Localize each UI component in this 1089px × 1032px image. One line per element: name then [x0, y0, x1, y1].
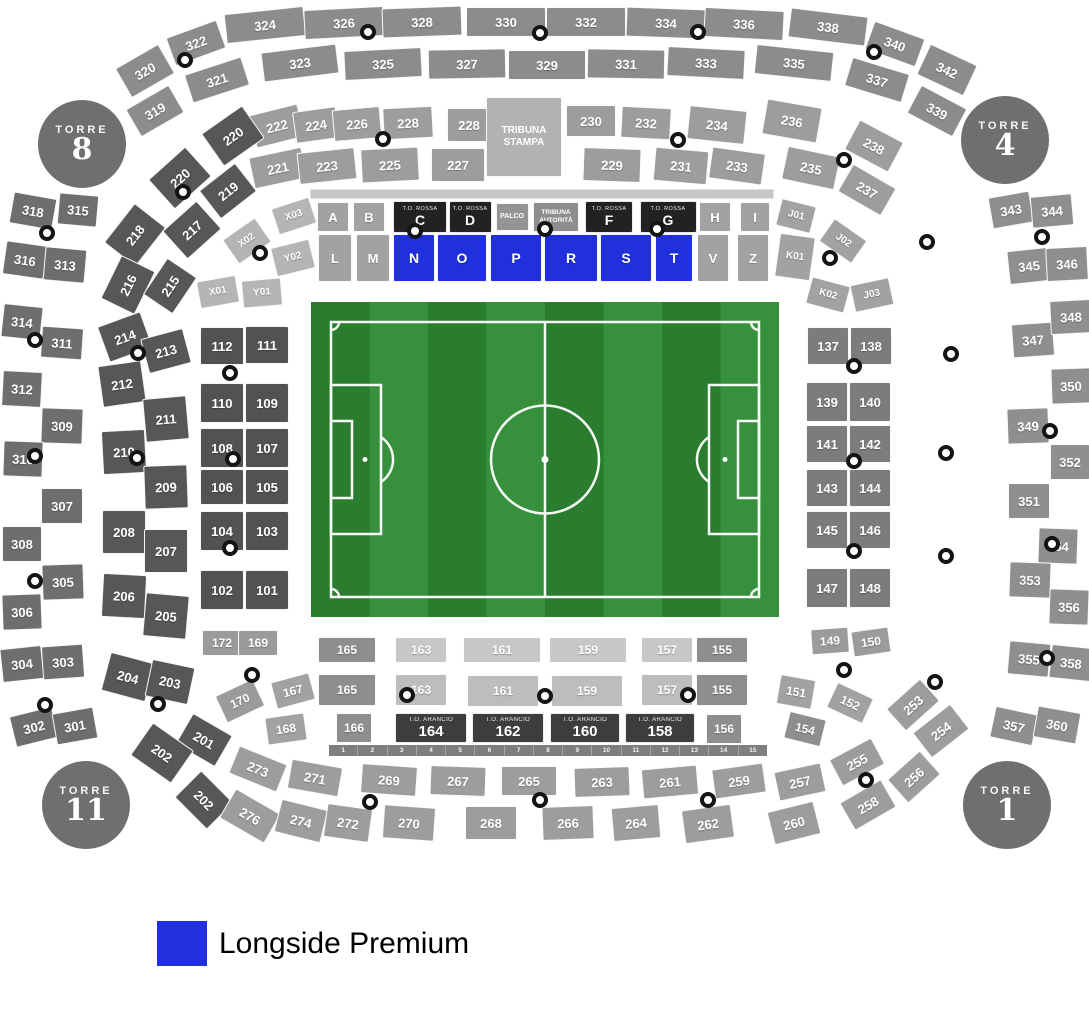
section-343: 343	[988, 191, 1035, 230]
section-211: 211	[142, 395, 190, 443]
section-323: 323	[260, 43, 339, 82]
section-269: 269	[360, 763, 418, 797]
section-332: 332	[546, 7, 626, 37]
section-137: 137	[807, 327, 849, 365]
section-160: T.O. ARANCIO160	[550, 713, 620, 743]
tower-number: 11	[65, 797, 107, 826]
section-348: 348	[1049, 299, 1089, 335]
legend-swatch	[157, 921, 207, 966]
entrance-dot	[222, 365, 238, 381]
entrance-dot	[943, 346, 959, 362]
section-D: T.O. ROSSAD	[449, 201, 492, 233]
pitch	[311, 302, 779, 617]
section-206: 206	[101, 573, 147, 619]
section-H: H	[699, 202, 731, 232]
section-257: 257	[773, 762, 826, 801]
entrance-dot	[532, 25, 548, 41]
row-number: 2	[358, 745, 387, 756]
entrance-dot	[919, 234, 935, 250]
section-148: 148	[849, 568, 891, 608]
section-170: 170	[215, 679, 266, 724]
tower-label: TORRE	[978, 120, 1031, 132]
tower-8: TORRE 8	[38, 100, 126, 188]
section-X03: X03	[271, 197, 318, 236]
section-159: 159	[549, 637, 627, 663]
section-236: 236	[761, 98, 822, 143]
section-329: 329	[508, 50, 586, 80]
section-301: 301	[52, 707, 99, 746]
section-168: 168	[264, 712, 308, 745]
entrance-dot	[670, 132, 686, 148]
legend-label: Longside Premium	[219, 927, 469, 961]
section-161: 161	[463, 637, 541, 663]
section-327: 327	[428, 48, 507, 79]
entrance-dot	[362, 794, 378, 810]
entrance-dot	[222, 540, 238, 556]
tower-1: TORRE 1	[963, 761, 1051, 849]
section-Y02: Y02	[270, 239, 316, 278]
section-271: 271	[287, 759, 343, 798]
row-number: 14	[709, 745, 738, 756]
section-232: 232	[620, 106, 672, 141]
section-336: 336	[703, 7, 784, 41]
section-358: 358	[1048, 644, 1089, 682]
section-150: 150	[850, 626, 891, 657]
section-105: 105	[245, 469, 289, 505]
section-X01: X01	[196, 275, 240, 310]
section-264: 264	[611, 804, 662, 842]
section-263: 263	[573, 766, 630, 798]
tower-label: TORRE	[55, 124, 108, 136]
tower-11: TORRE 11	[42, 761, 130, 849]
section-167: 167	[270, 672, 316, 709]
section-338: 338	[787, 7, 868, 46]
section-215: 215	[143, 258, 197, 315]
section-268: 268	[465, 806, 517, 840]
section-229: 229	[582, 147, 641, 183]
stadium-seat-map: 3243263283303323343363383223403203213233…	[0, 0, 1089, 1032]
section-palco: PALCO	[496, 203, 529, 231]
entrance-dot	[836, 152, 852, 168]
section-306: 306	[1, 593, 42, 630]
tower-label: TORRE	[980, 785, 1033, 797]
section-324: 324	[224, 6, 307, 44]
entrance-dot	[649, 221, 665, 237]
entrance-dot	[938, 548, 954, 564]
section-V: V	[697, 234, 729, 282]
section-165: 165	[318, 674, 376, 706]
entrance-dot	[700, 792, 716, 808]
section-353: 353	[1008, 561, 1051, 598]
section-149: 149	[810, 627, 850, 656]
section-166: 166	[336, 713, 372, 743]
entrance-dot	[537, 688, 553, 704]
entrance-dot	[244, 667, 260, 683]
row-number: 7	[505, 745, 534, 756]
section-233: 233	[708, 146, 766, 185]
section-110: 110	[200, 383, 244, 423]
section-265: 265	[501, 766, 557, 796]
section-144: 144	[849, 469, 891, 507]
section-321: 321	[184, 56, 250, 103]
section-261: 261	[641, 765, 699, 800]
entrance-dot	[399, 687, 415, 703]
entrance-dot	[537, 221, 553, 237]
section-227: 227	[431, 148, 485, 182]
section-208: 208	[102, 510, 146, 554]
section-102: 102	[200, 570, 244, 610]
entrance-dot	[846, 358, 862, 374]
section-A: A	[317, 202, 349, 232]
entrance-dot	[680, 687, 696, 703]
entrance-dot	[532, 792, 548, 808]
section-225: 225	[360, 147, 420, 184]
section-M: M	[356, 234, 390, 282]
section-Z: Z	[737, 234, 769, 282]
entrance-dot	[360, 24, 376, 40]
penalty-spot-left	[363, 457, 368, 462]
section-Y01: Y01	[241, 277, 283, 308]
section-R[interactable]: R	[544, 234, 598, 282]
section-304: 304	[0, 645, 45, 683]
section-155: 155	[696, 637, 748, 663]
entrance-dot	[37, 697, 53, 713]
entrance-dot	[27, 448, 43, 464]
entrance-dot	[1039, 650, 1055, 666]
section-309: 309	[40, 407, 83, 444]
section-302: 302	[9, 706, 59, 748]
entrance-dot	[407, 223, 423, 239]
tower-number: 4	[995, 132, 1016, 161]
section-231: 231	[653, 147, 710, 186]
section-151: 151	[776, 674, 817, 710]
section-155: 155	[696, 674, 748, 706]
section-259: 259	[711, 763, 767, 800]
section-106: 106	[200, 469, 244, 505]
entrance-dot	[252, 245, 268, 261]
row-number: 8	[534, 745, 563, 756]
section-159: 159	[551, 675, 623, 707]
section-351: 351	[1008, 483, 1050, 519]
entrance-dot	[375, 131, 391, 147]
penalty-spot-right	[723, 457, 728, 462]
section-322: 322	[165, 20, 226, 67]
section-140: 140	[849, 382, 891, 422]
row-number: 12	[651, 745, 680, 756]
entrance-dot	[177, 52, 193, 68]
section-164: T.O. ARANCIO164	[395, 713, 467, 743]
section-316: 316	[2, 240, 48, 280]
entrance-dot	[866, 44, 882, 60]
section-331: 331	[587, 48, 666, 79]
section-262: 262	[681, 804, 735, 845]
legend: Longside Premium	[157, 921, 469, 966]
row-number: 9	[563, 745, 592, 756]
section-260: 260	[767, 801, 822, 846]
row-number: 6	[475, 745, 504, 756]
section-147: 147	[806, 568, 848, 608]
section-303: 303	[41, 644, 85, 681]
section-K01: K01	[774, 233, 816, 282]
row-number-strip: 123456789101112131415	[328, 744, 768, 757]
tower-number: 1	[997, 797, 1018, 826]
section-350: 350	[1050, 367, 1089, 404]
section-230: 230	[566, 105, 616, 137]
row-number: 13	[680, 745, 709, 756]
center-spot	[542, 456, 549, 463]
section-267: 267	[429, 765, 486, 797]
entrance-dot	[938, 445, 954, 461]
section-266: 266	[541, 805, 594, 841]
section-tribuna-stampa: TRIBUNASTAMPA	[486, 97, 562, 177]
section-N[interactable]: N	[393, 234, 435, 282]
entrance-dot	[846, 543, 862, 559]
entrance-dot	[690, 24, 706, 40]
entrance-dot	[927, 674, 943, 690]
section-347: 347	[1011, 322, 1055, 359]
entrance-dot	[150, 696, 166, 712]
entrance-dot	[836, 662, 852, 678]
section-J03: J03	[850, 277, 895, 313]
section-T[interactable]: T	[655, 234, 693, 282]
section-161: 161	[467, 675, 539, 707]
section-234: 234	[686, 105, 747, 145]
section-273: 273	[228, 745, 287, 792]
section-337: 337	[844, 57, 910, 103]
section-L: L	[318, 234, 352, 282]
tower-4: TORRE 4	[961, 96, 1049, 184]
section-307: 307	[41, 488, 83, 524]
section-335: 335	[754, 44, 835, 82]
section-111: 111	[245, 326, 289, 364]
section-I: I	[740, 202, 770, 232]
section-158: T.O. ARANCIO158	[625, 713, 695, 743]
section-305: 305	[41, 563, 84, 600]
section-F: T.O. ROSSAF	[585, 201, 633, 233]
entrance-dot	[846, 453, 862, 469]
section-205: 205	[142, 592, 190, 640]
section-112: 112	[200, 327, 244, 365]
section-139: 139	[806, 382, 848, 422]
section-165: 165	[318, 637, 376, 663]
section-109: 109	[245, 383, 289, 423]
section-103: 103	[245, 511, 289, 551]
section-218: 218	[104, 203, 166, 267]
section-212: 212	[97, 360, 146, 408]
section-209: 209	[143, 464, 189, 510]
section-315: 315	[57, 192, 100, 227]
section-255: 255	[829, 737, 885, 786]
entrance-dot	[175, 184, 191, 200]
entrance-dot	[225, 451, 241, 467]
entrance-dot	[130, 345, 146, 361]
row-number: 11	[622, 745, 651, 756]
entrance-dot	[858, 772, 874, 788]
section-J01: J01	[775, 198, 817, 234]
entrance-dot	[129, 450, 145, 466]
walkway	[310, 189, 775, 200]
tower-number: 8	[72, 136, 93, 165]
section-107: 107	[245, 428, 289, 468]
section-333: 333	[666, 46, 745, 80]
section-311: 311	[40, 326, 84, 361]
section-223: 223	[296, 147, 357, 185]
section-163: 163	[395, 637, 447, 663]
section-270: 270	[382, 804, 436, 842]
section-207: 207	[144, 529, 188, 573]
section-346: 346	[1045, 246, 1089, 282]
entrance-dot	[1042, 423, 1058, 439]
section-143: 143	[806, 469, 848, 507]
section-172: 172	[202, 630, 242, 656]
entrance-dot	[27, 573, 43, 589]
section-B: B	[353, 202, 385, 232]
row-number: 4	[417, 745, 446, 756]
section-141: 141	[806, 425, 848, 463]
entrance-dot	[1044, 536, 1060, 552]
section-235: 235	[781, 146, 841, 190]
row-number: 10	[592, 745, 621, 756]
section-156: 156	[706, 714, 742, 744]
section-228: 228	[447, 108, 491, 142]
row-number: 5	[446, 745, 475, 756]
section-308: 308	[2, 526, 42, 562]
section-312: 312	[1, 370, 43, 408]
section-274: 274	[274, 799, 329, 844]
entrance-dot	[1034, 229, 1050, 245]
tower-label: TORRE	[59, 785, 112, 797]
row-number: 15	[739, 745, 767, 756]
section-325: 325	[343, 47, 422, 81]
section-352: 352	[1050, 444, 1089, 480]
section-101: 101	[245, 570, 289, 610]
section-157: 157	[641, 637, 693, 663]
entrance-dot	[39, 225, 55, 241]
section-220: 220	[148, 146, 212, 209]
section-313: 313	[43, 246, 88, 284]
section-256: 256	[887, 750, 941, 803]
section-K02: K02	[805, 276, 851, 313]
row-number: 3	[388, 745, 417, 756]
entrance-dot	[822, 250, 838, 266]
section-169: 169	[238, 630, 278, 656]
section-145: 145	[806, 511, 848, 549]
entrance-dot	[27, 332, 43, 348]
section-P[interactable]: P	[490, 234, 542, 282]
section-360: 360	[1033, 705, 1082, 744]
section-S[interactable]: S	[600, 234, 652, 282]
section-152: 152	[826, 682, 874, 724]
section-357: 357	[989, 706, 1039, 746]
section-154: 154	[783, 711, 827, 747]
section-344: 344	[1030, 193, 1075, 229]
section-356: 356	[1048, 588, 1089, 625]
section-162: T.O. ARANCIO162	[472, 713, 544, 743]
section-O[interactable]: O	[437, 234, 487, 282]
section-328: 328	[382, 6, 463, 39]
row-number: 1	[329, 745, 358, 756]
